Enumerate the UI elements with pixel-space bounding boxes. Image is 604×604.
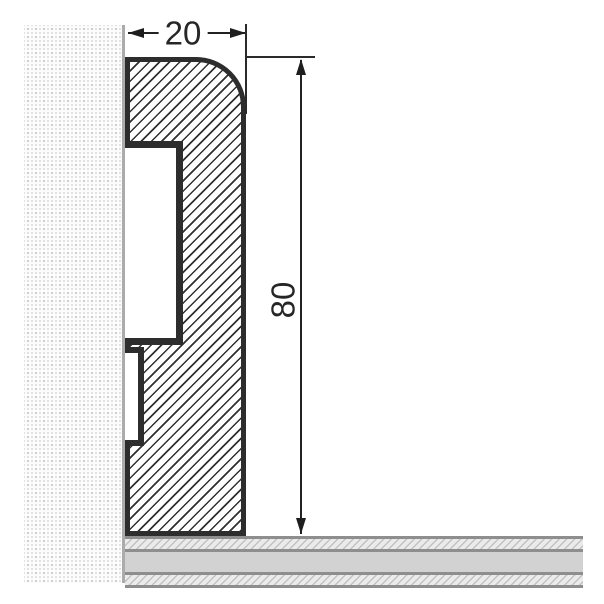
- profile-cavity: [125, 141, 183, 345]
- floor-bottom-layer: [125, 575, 583, 585]
- drawing-canvas: 20 80: [0, 0, 604, 604]
- arrow-down-icon: [296, 518, 306, 534]
- profile-notch: [125, 347, 144, 446]
- width-extension-line: [245, 24, 247, 114]
- floor-section: [125, 536, 583, 588]
- floor-core-layer: [125, 552, 583, 572]
- floor-top-layer: [125, 539, 583, 549]
- height-extension-line: [245, 56, 315, 58]
- height-dimension-label: 80: [267, 282, 300, 319]
- width-dimension-label: 20: [159, 17, 208, 50]
- arrow-right-icon: [230, 28, 246, 38]
- arrow-left-icon: [128, 28, 144, 38]
- arrow-up-icon: [296, 59, 306, 75]
- wall-section: [24, 25, 125, 583]
